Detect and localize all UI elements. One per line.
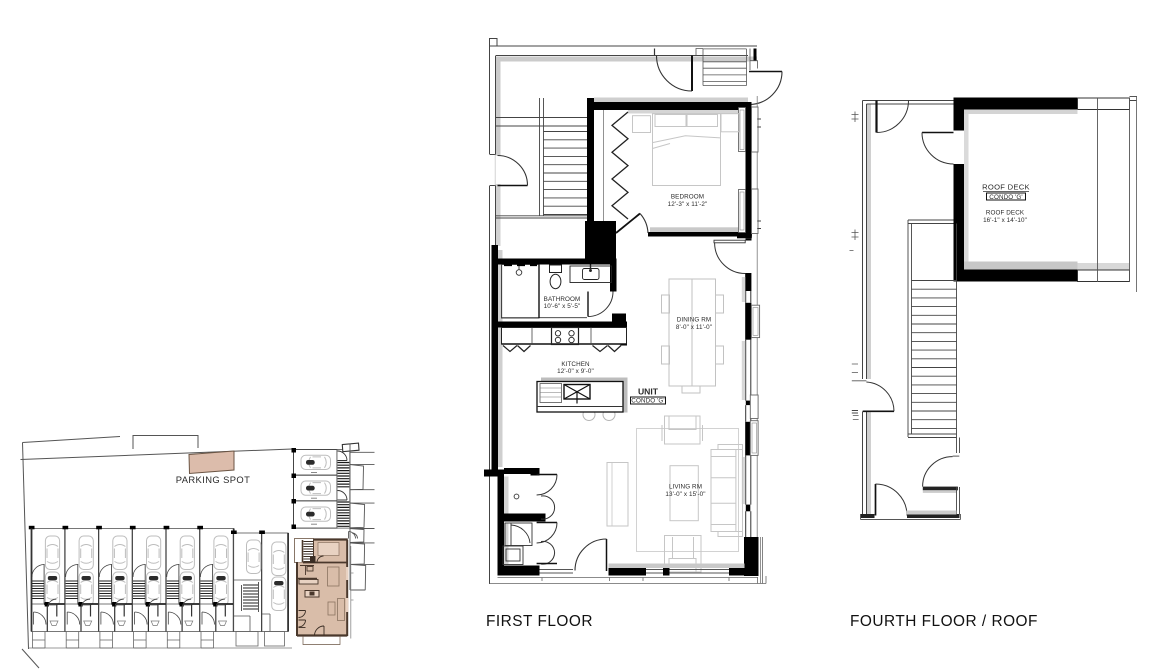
svg-text:10'-6" x 5'-5": 10'-6" x 5'-5"	[544, 303, 581, 310]
svg-text:8'-0" x 11'-0": 8'-0" x 11'-0"	[676, 324, 712, 331]
svg-text:ROOF DECK: ROOF DECK	[982, 183, 1030, 192]
svg-text:LIVING RM: LIVING RM	[669, 484, 702, 491]
svg-text:12'-3" x 11'-2": 12'-3" x 11'-2"	[668, 201, 708, 208]
svg-text:CONDO 'G': CONDO 'G'	[989, 194, 1022, 201]
svg-text:CONDO 'G': CONDO 'G'	[631, 398, 664, 405]
svg-text:12'-0" x 9'-0": 12'-0" x 9'-0"	[557, 368, 594, 375]
svg-text:KITCHEN: KITCHEN	[561, 361, 590, 368]
svg-text:UNIT: UNIT	[638, 387, 659, 397]
svg-text:PARKING SPOT: PARKING SPOT	[176, 474, 250, 485]
svg-text:13'-0" x 15'-0": 13'-0" x 15'-0"	[665, 491, 705, 498]
svg-text:FIRST FLOOR: FIRST FLOOR	[486, 613, 593, 630]
svg-text:ROOF DECK: ROOF DECK	[986, 210, 1025, 217]
svg-text:DINING RM: DINING RM	[677, 317, 711, 324]
svg-text:16'-1" x 14'-10": 16'-1" x 14'-10"	[983, 217, 1027, 224]
svg-text:BATHROOM: BATHROOM	[544, 296, 581, 303]
svg-text:FOURTH FLOOR / ROOF: FOURTH FLOOR / ROOF	[850, 613, 1038, 630]
svg-text:BEDROOM: BEDROOM	[671, 194, 704, 201]
